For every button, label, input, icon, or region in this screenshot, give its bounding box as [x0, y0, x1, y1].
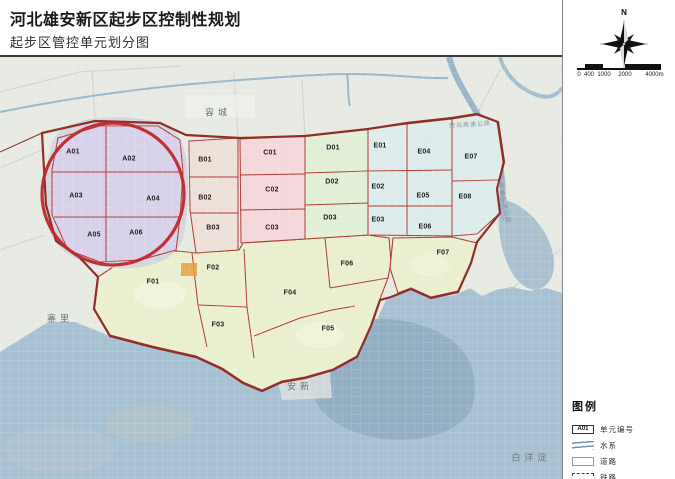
railway-icon: [572, 473, 594, 479]
page-subtitle: 起步区管控单元划分图: [10, 32, 150, 51]
scale-bar: 0400100020004000m: [577, 64, 663, 82]
scale-tick-400: 400: [584, 72, 594, 78]
water-icon: [572, 441, 594, 450]
legend-item-label: 水系: [600, 440, 617, 451]
legend-title: 图例: [572, 398, 672, 414]
sidebar: N 0400100020004000m 图例 A01单元编号水系道路铁路: [562, 0, 675, 479]
planning-map-page: 河北雄安新区起步区控制性规划 起步区管控单元划分图: [0, 0, 675, 479]
block-grid-texture: [0, 57, 562, 479]
legend-item-road: 道路: [572, 453, 672, 469]
scale-tick-0: 0: [577, 72, 580, 78]
header: 河北雄安新区起步区控制性规划 起步区管控单元划分图: [0, 0, 562, 57]
legend-items: A01单元编号水系道路铁路: [572, 421, 672, 479]
scale-ticks: 0400100020004000m: [577, 72, 661, 81]
legend-item-label: 道路: [600, 456, 617, 467]
legend: 图例 A01单元编号水系道路铁路: [572, 398, 672, 479]
north-label: N: [596, 8, 652, 18]
compass-icon: [598, 18, 650, 70]
road-icon: [572, 457, 594, 466]
legend-item-water: 水系: [572, 437, 672, 453]
legend-item-label: 铁路: [600, 472, 617, 479]
scale-tick-1000: 1000: [597, 72, 610, 78]
legend-item-unit-box: A01单元编号: [572, 421, 672, 437]
map-area: [0, 57, 562, 479]
page-title: 河北雄安新区起步区控制性规划: [10, 6, 241, 30]
scale-tick-2000: 2000: [618, 72, 631, 78]
unit-box-icon: A01: [572, 425, 594, 434]
legend-item-railway: 铁路: [572, 469, 672, 479]
legend-item-label: 单元编号: [600, 424, 634, 435]
scale-tick-4000m: 4000m: [645, 72, 663, 78]
scale-bar-graphic: [577, 64, 661, 70]
map-canvas: [0, 57, 562, 479]
